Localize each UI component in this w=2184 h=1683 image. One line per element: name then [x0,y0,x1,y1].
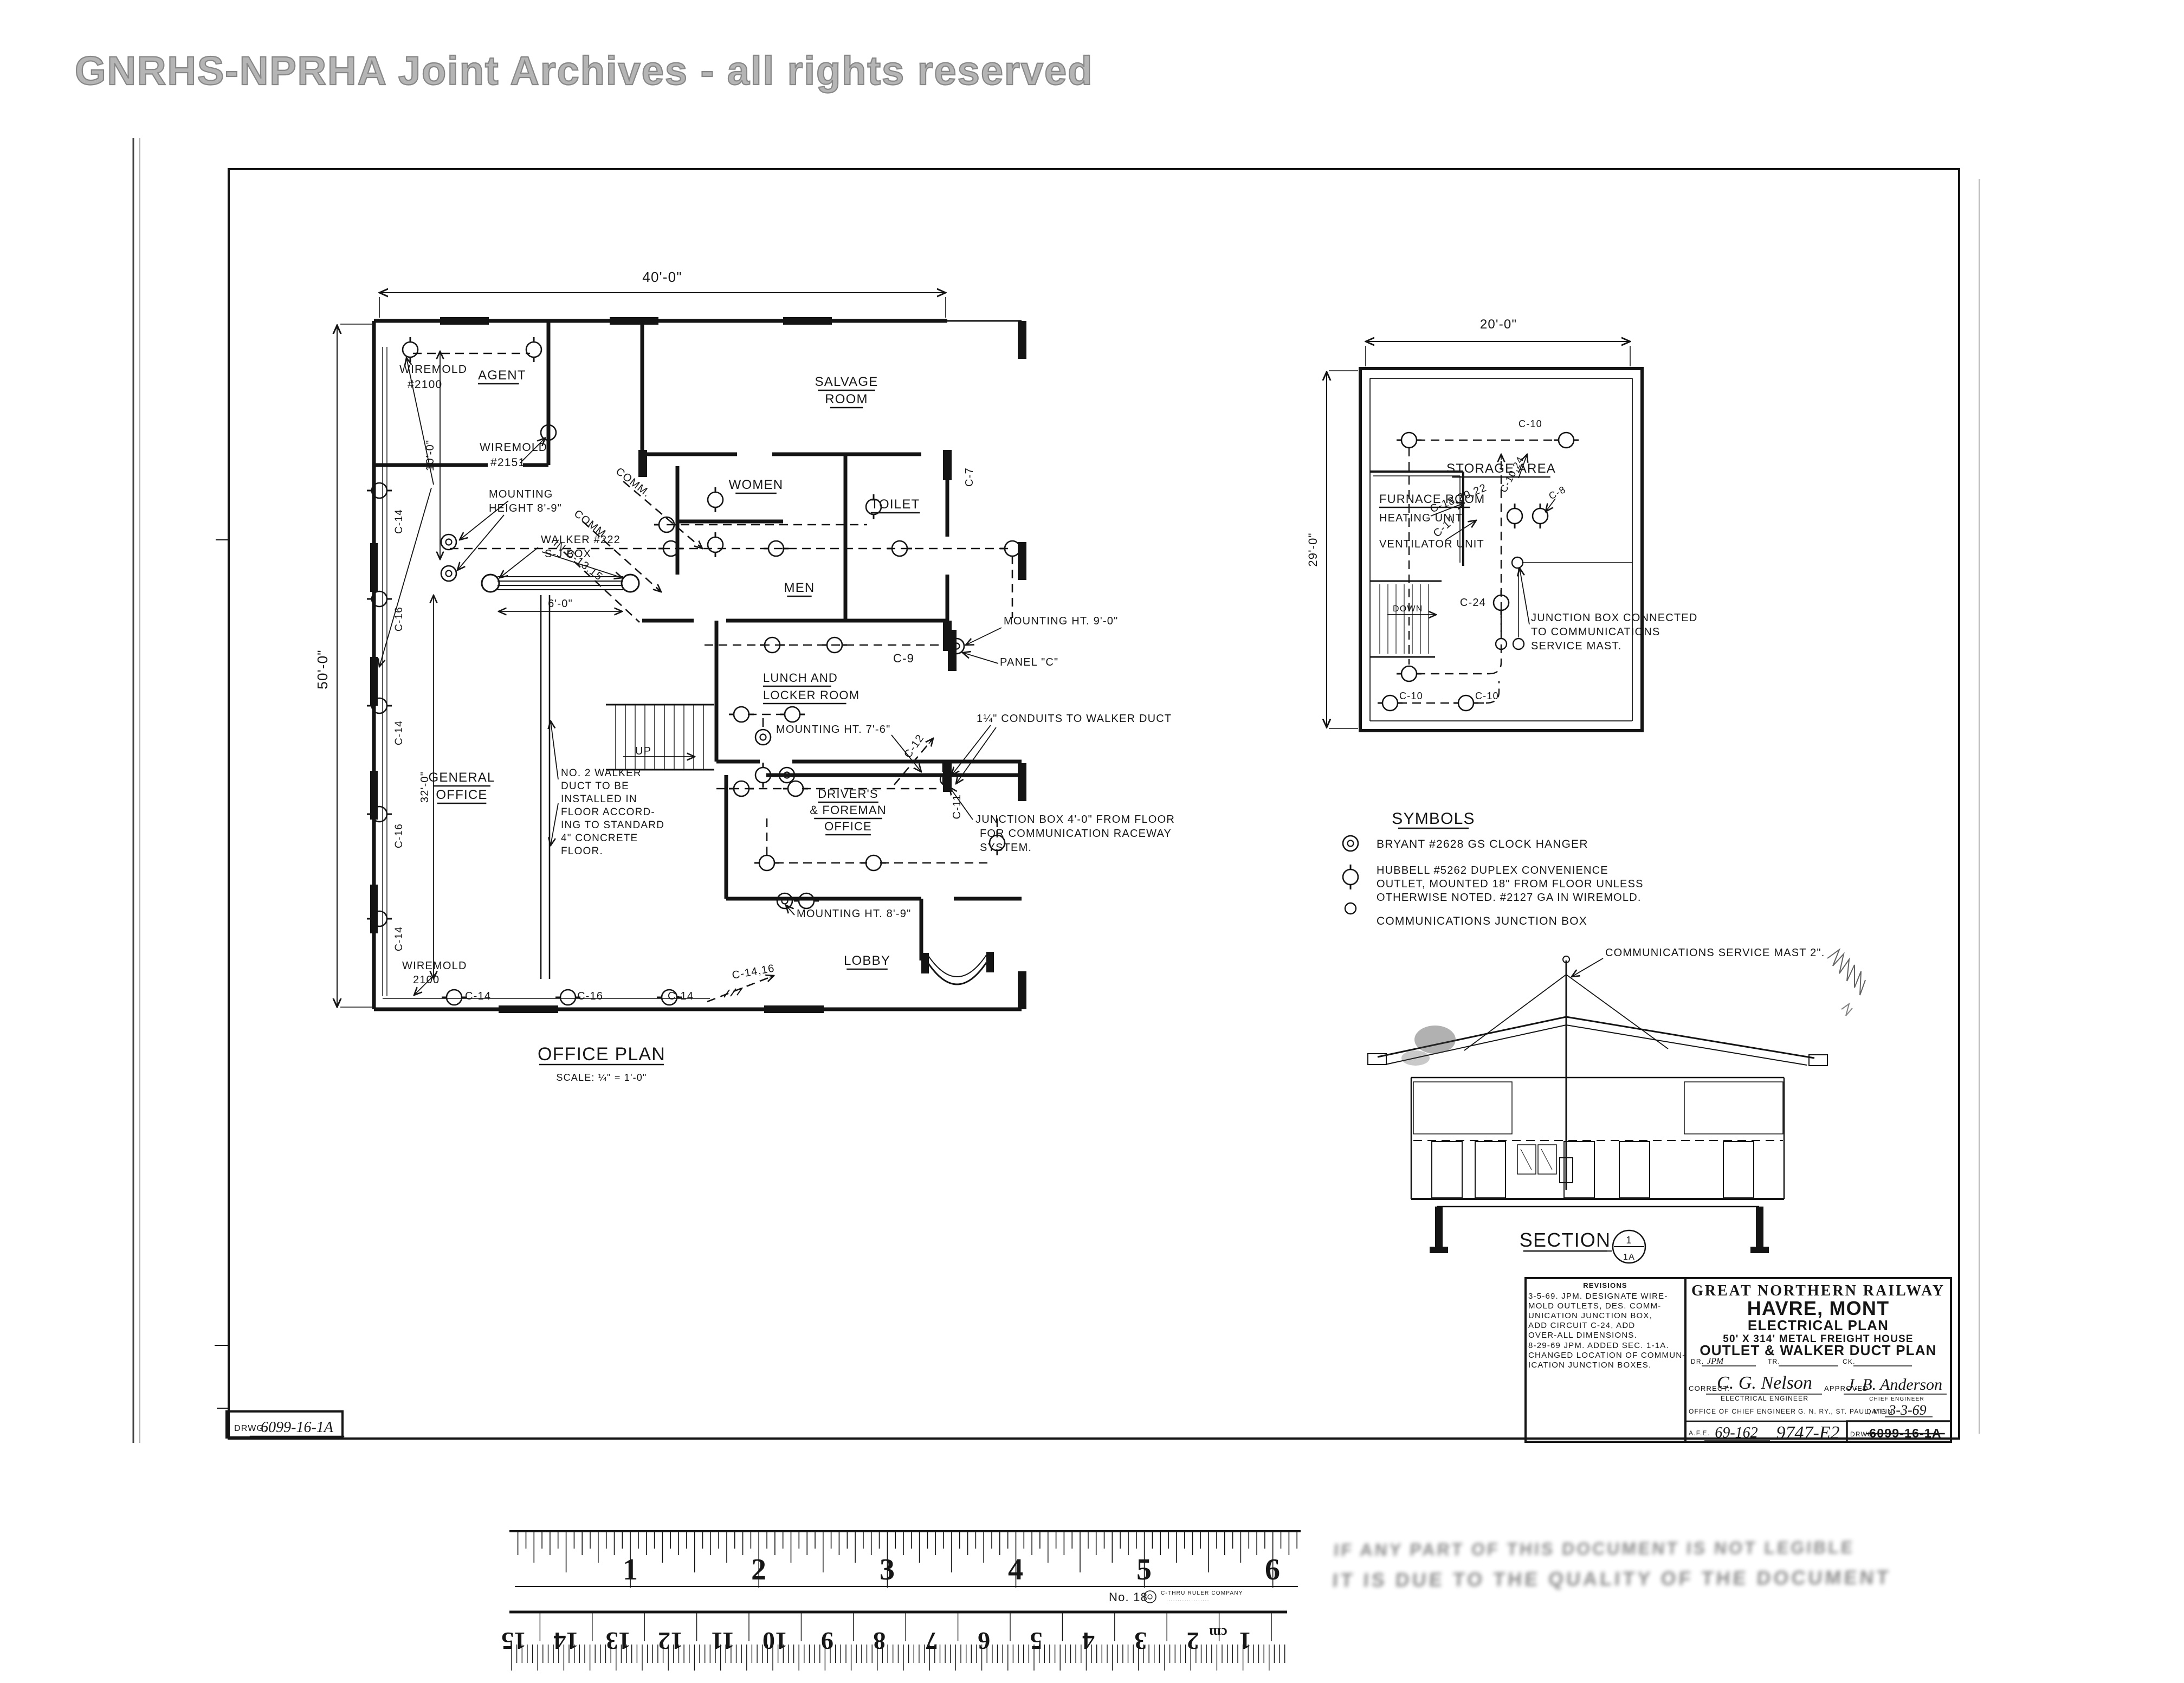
inch-mark-6: 6 [1265,1553,1280,1587]
office-plan-walls [374,321,1026,1009]
toilet-room-text: TOILET [871,497,920,512]
duplex-symbol-icon [1554,433,1579,448]
revision-line-4: ADD CIRCUIT C-24, ADD [1528,1321,1635,1330]
c-12-text: C-12 [902,732,927,760]
revision-line-5-text: OVER-ALL DIMENSIONS. [1528,1331,1637,1340]
mast-note-text: COMMUNICATIONS SERVICE MAST 2". [1605,947,1825,959]
wiremold-2100b-line1-text: WIREMOLD [402,960,467,972]
tb-dr-value: JPM [1707,1357,1724,1366]
up-label: UP [635,745,651,757]
duplex-symbol-icon [367,591,392,607]
cm-mark-5: 5 [1030,1627,1043,1655]
women-room: WOMEN [729,478,784,493]
symbol-duplex-desc-3-text: OTHERWISE NOTED. #2127 GA IN WIREMOLD. [1377,892,1642,904]
drawing-labels: 40'-0"50'-0"WIREMOLD#2100AGENTWIREMOLD#2… [234,269,1945,1604]
tb-correct-title-text: ELECTRICAL ENGINEER [1721,1395,1808,1402]
cm-mark-2: 2 [1187,1627,1199,1655]
cm-mark-14: 14 [553,1627,578,1655]
conduits-note: 1¼" CONDUITS TO WALKER DUCT [977,713,1172,725]
symbol-clock-desc-text: BRYANT #2628 GS CLOCK HANGER [1377,838,1588,850]
section-title-text: SECTION [1520,1229,1611,1251]
c-8-text: C-8 [1547,484,1567,502]
duplex-symbol-icon [708,532,723,557]
junction-4ft-line2: FOR COMMUNICATION RACEWAY [980,828,1172,840]
tb-approved-signature-text: J. B. Anderson [1847,1376,1942,1394]
office-plan-scale-text: SCALE: ¼" = 1'-0" [556,1072,647,1083]
tb-office-label-text: OFFICE OF CHIEF ENGINEER [1689,1408,1796,1415]
section-title: SECTION [1520,1229,1611,1251]
c-16-left2: C-16 [393,823,405,848]
section-detail-num: 1 [1626,1235,1632,1246]
ruler-maker-text: C-THRU RULER COMPANY [1161,1590,1243,1596]
tb-ck-label-text: CK. [1843,1358,1856,1365]
salvage-room-line2: ROOM [825,392,868,408]
drivers-office-line1-text: DRIVER'S [818,787,878,801]
drivers-office-line2: & FOREMAN [810,803,887,818]
duplex-symbol-icon [442,990,467,1005]
c-24: C-24 [1460,597,1486,609]
lobby-room-text: LOBBY [844,953,890,968]
storage-plan-dimensions [1327,341,1630,728]
cm-mark-15: 15 [501,1627,526,1655]
general-office-line1-text: GENERAL [428,770,495,785]
electrical-plan-drawing: 123456151413121110987654321cm 40'-0"50'-… [0,0,2184,1680]
dim-50: 50'-0" [314,649,331,689]
men-room: MEN [784,581,815,596]
junction-4ft-line3-text: SYSTEM. [980,842,1032,854]
tb-plan-type-text: ELECTRICAL PLAN [1748,1317,1889,1333]
c-14-left1: C-14 [393,509,405,534]
wiremold-2100-line1: WIREMOLD [399,363,467,376]
cm-mark-3: 3 [1134,1627,1147,1655]
c-14-left2-text: C-14 [393,720,405,745]
revisions-title-text: REVISIONS [1583,1281,1627,1289]
symbol-duplex-desc-2-text: OUTLET, MOUNTED 18" FROM FLOOR UNLESS [1377,878,1644,890]
symbol-duplex-desc-1-text: HUBBELL #5262 DUPLEX CONVENIENCE [1377,865,1608,876]
women-room-text: WOMEN [729,478,784,492]
revision-line-6-text: 8-29-69 JPM. ADDED SEC. 1-1A. [1528,1341,1669,1350]
mounting-ht-89b-text: MOUNTING HT. 8'-9" [797,908,911,920]
cm-mark-10: 10 [763,1627,787,1655]
duplex-symbol-icon [658,541,683,556]
mounting-ht-76-text: MOUNTING HT. 7'-6" [776,724,890,736]
inch-mark-3: 3 [880,1553,895,1587]
general-office-line1: GENERAL [428,770,495,786]
tb-afe-label: A.F.E. [1689,1429,1710,1437]
cm-mark-6: 6 [978,1627,990,1655]
tb-approved-title-text: CHIEF ENGINEER [1869,1396,1924,1402]
c-16-bottom-text: C-16 [577,990,603,1002]
wiremold-2100-line1-text: WIREMOLD [399,363,467,376]
symbol-jbox-desc: COMMUNICATIONS JUNCTION BOX [1377,915,1587,927]
tb-office-label: OFFICE OF CHIEF ENGINEER [1689,1408,1796,1415]
cm-mark-7: 7 [926,1627,938,1655]
tb-afe-value: 69-162 [1715,1424,1757,1441]
revision-line-1-text: 3-5-69. JPM. DESIGNATE WIRE- [1528,1292,1668,1301]
cm-mark-12: 12 [658,1627,683,1655]
junction-mast-line1: JUNCTION BOX CONNECTED [1531,612,1698,624]
inch-mark-1: 1 [623,1553,638,1587]
tb-ck-label: CK. [1843,1358,1856,1365]
symbol-duplex-desc-3: OTHERWISE NOTED. #2127 GA IN WIREMOLD. [1377,892,1642,904]
duplex-symbol-icon [403,337,418,362]
symbols-title-text: SYMBOLS [1392,810,1475,828]
c-16-left1: C-16 [393,607,405,631]
mounting-ht-90-text: MOUNTING HT. 9'-0" [1004,615,1118,627]
walker-duct-note-1: NO. 2 WALKER [561,768,642,779]
dim-10: 10'-0" [424,440,436,471]
mounting-ht-90: MOUNTING HT. 9'-0" [1004,615,1118,627]
tb-date-label: DATE [1866,1408,1886,1415]
cm-mark-1: 1 [1239,1627,1251,1655]
ruler-model-text: No. 18 [1109,1590,1148,1604]
junction-4ft-line1-text: JUNCTION BOX 4'-0" FROM FLOOR [975,814,1175,826]
duplex-symbol-icon [526,337,541,362]
c-24-text: C-24 [1460,597,1486,609]
duplex-symbol-icon [1533,504,1548,528]
lunch-room-line1: LUNCH AND [763,671,838,686]
cm-unit-label: cm [1209,1625,1227,1641]
drivers-office-line3-text: OFFICE [824,820,872,833]
c-8: C-8 [1547,484,1567,502]
agent-room-text: AGENT [478,368,526,383]
duplex-symbol-icon [887,541,912,556]
symbol-duplex-desc-1: HUBBELL #5262 DUPLEX CONVENIENCE [1377,865,1608,876]
duplex-symbol-icon [760,637,785,653]
tb-correct-signature: C. G. Nelson [1717,1373,1812,1393]
dim-20-text: 20'-0" [1480,317,1517,332]
wiremold-2100b-line1: WIREMOLD [402,960,467,972]
joct-symbol-icon [482,575,499,592]
stamp-line-2: IT IS DUE TO THE QUALITY OF THE DOCUMENT [1332,1565,2114,1592]
wiremold-2151-line1-text: WIREMOLD [480,441,547,454]
building-section [1368,956,1827,1263]
junction-mast-line1-text: JUNCTION BOX CONNECTED [1531,612,1698,624]
lunch-room-line1-text: LUNCH AND [763,671,838,685]
c-14-16-text: C-14,16 [731,962,776,981]
tb-dr-value-text: JPM [1707,1357,1724,1366]
c-10-right-text: C-10 [1519,418,1542,429]
walker-duct-note-5: ING TO STANDARD [561,820,664,831]
duplex-symbol-icon [729,781,754,796]
c-10-bottom1-text: C-10 [1399,691,1423,701]
dim-50-text: 50'-0" [314,649,331,689]
office-plan-title-text: OFFICE PLAN [538,1044,665,1065]
revision-line-3: UNICATION JUNCTION BOX, [1528,1311,1652,1320]
duplex-symbol-icon [1397,433,1421,448]
clock-symbol-icon [755,730,771,745]
up-label-text: UP [635,745,651,757]
c-11: C-11 [951,794,963,820]
wiremold-2151-line2-text: #2151 [490,456,525,469]
dim-40: 40'-0" [642,269,682,285]
revision-line-2-text: MOLD OUTLETS, DES. COMM- [1528,1301,1661,1311]
tb-dr-label-text: DR. [1691,1358,1704,1365]
walker-duct-note-4: FLOOR ACCORD- [561,807,655,818]
section-sheet-num: 1A [1623,1253,1635,1262]
panel-c: PANEL "C" [1000,656,1058,668]
symbol-jbox-desc-text: COMMUNICATIONS JUNCTION BOX [1377,915,1587,927]
tb-plan-number: 9747-E2 [1776,1423,1839,1443]
mast-note: COMMUNICATIONS SERVICE MAST 2". [1605,947,1825,959]
junction-mast-line3: SERVICE MAST. [1531,640,1622,652]
revision-line-8-text: ICATION JUNCTION BOXES. [1528,1360,1651,1370]
joct-symbol-icon [622,575,639,592]
c-9: C-9 [893,652,914,665]
tb-correct-title: ELECTRICAL ENGINEER [1721,1395,1808,1402]
section-detail-num-text: 1 [1626,1235,1632,1246]
c-11-text: C-11 [951,794,963,820]
pen-scribble [1827,950,1865,1016]
wiremold-2151-line1: WIREMOLD [480,441,547,454]
jbox-symbol-icon [1512,557,1523,568]
tb-date-value: 3-3-69 [1888,1402,1926,1418]
junction-4ft-line1: JUNCTION BOX 4'-0" FROM FLOOR [975,814,1175,826]
c-14-bottom1: C-14 [465,990,491,1002]
tb-plan-name: OUTLET & WALKER DUCT PLAN [1700,1342,1936,1358]
dim-20: 20'-0" [1480,317,1517,332]
duplex-symbol-icon [1507,504,1522,528]
junction-mast-line2: TO COMMUNICATIONS [1531,626,1660,638]
tb-correct-signature-text: C. G. Nelson [1717,1373,1812,1393]
cm-mark-8: 8 [873,1627,886,1655]
duplex-symbol-icon [780,707,805,722]
tb-location: HAVRE, MONT [1747,1297,1890,1319]
walker-duct-note-2: DUCT TO BE [561,781,629,792]
walker-duct-note-2-text: DUCT TO BE [561,781,629,792]
jbox-symbol-icon [1513,639,1524,649]
mounting-height-89-line2-text: HEIGHT 8'-9" [489,502,562,514]
dim-6-text: 6'-0" [548,598,573,610]
drivers-office-line1: DRIVER'S [818,787,878,802]
walker-duct-note-5-text: ING TO STANDARD [561,820,664,831]
cm-mark-9: 9 [821,1627,833,1655]
c-14-left2: C-14 [393,720,405,745]
ruler-model: No. 18 [1109,1590,1148,1604]
junction-mast-line3-text: SERVICE MAST. [1531,640,1622,652]
duplex-symbol-icon [1343,865,1358,889]
agent-room: AGENT [478,368,526,384]
duplex-symbol-icon [367,483,392,498]
c-14-bottom2-text: C-14 [668,990,694,1002]
c-7: C-7 [964,467,975,487]
duplex-symbol-icon [708,487,723,512]
drivers-office-line3: OFFICE [824,820,872,835]
mounting-height-89-line1: MOUNTING [489,488,553,500]
panel-c-text: PANEL "C" [1000,656,1058,668]
wiremold-2100-line2: #2100 [408,378,442,391]
archive-watermark: GNRHS-NPRHA Joint Archives - all rights … [75,48,1093,94]
c-10-right: C-10 [1519,418,1542,429]
lobby-room: LOBBY [844,953,890,969]
c-14-16: C-14,16 [731,962,776,981]
drivers-office-line2-text: & FOREMAN [810,803,887,817]
storage-area-text: STORAGE AREA [1446,461,1556,476]
walker-duct-note-7-text: FLOOR. [561,846,603,857]
c-10-bottom2-text: C-10 [1475,691,1499,701]
walker-duct-note-7: FLOOR. [561,846,603,857]
junction-4ft-line3: SYSTEM. [980,842,1032,854]
section-sheet-num-text: 1A [1623,1253,1635,1262]
wiremold-2100b-line2-text: 2100 [413,974,440,986]
walker-duct-note-6: 4" CONCRETE [561,833,638,844]
duplex-symbol-icon [794,893,819,908]
dim-29: 29'-0" [1306,532,1320,566]
cm-mark-4: 4 [1082,1627,1095,1655]
general-office-line2-text: OFFICE [436,788,487,802]
storage-area: STORAGE AREA [1446,461,1556,477]
dim-32-text: 32'-0" [419,771,431,803]
tb-afe-label-text: A.F.E. [1689,1429,1710,1437]
wiremold-2100b-line2: 2100 [413,974,440,986]
panel-symbol-icon [948,630,957,671]
drwg-corner-number-text: 6099-16-1A [261,1419,334,1436]
revisions-title: REVISIONS [1583,1281,1627,1289]
tb-plan-number-text: 9747-E2 [1776,1423,1839,1443]
dim-40-text: 40'-0" [642,269,682,285]
mounting-ht-76: MOUNTING HT. 7'-6" [776,724,890,736]
tb-drwg-number: 6099-16-1A [1866,1426,1944,1440]
c-16-left2-text: C-16 [393,823,405,848]
clock-symbol-icon [441,566,456,581]
clock-symbol-icon [1343,836,1358,851]
ventilator-unit-text: VENTILATOR UNIT [1379,538,1484,550]
c-10-bottom1: C-10 [1399,691,1423,701]
lunch-room-line2: LOCKER ROOM [763,688,860,704]
storage-plan-circuits [1398,440,1559,703]
stamp-line-1: IF ANY PART OF THIS DOCUMENT IS NOT LEGI… [1334,1536,2115,1561]
lunch-room-line2-text: LOCKER ROOM [763,688,860,702]
office-plan-scale: SCALE: ¼" = 1'-0" [556,1072,647,1083]
tb-date-label-text: DATE [1866,1408,1886,1415]
tb-dr-label: DR. [1691,1358,1704,1365]
inch-mark-4: 4 [1008,1553,1023,1587]
inch-mark-5: 5 [1136,1553,1152,1587]
walker-duct-note-3-text: INSTALLED IN [561,794,637,805]
c-14-left3: C-14 [393,926,405,951]
tb-approved-signature: J. B. Anderson [1847,1376,1942,1394]
jbox-symbol-icon [1345,903,1356,914]
c-14-bottom1-text: C-14 [465,990,491,1002]
tb-approved-title: CHIEF ENGINEER [1869,1396,1924,1402]
duplex-symbol-icon [861,855,886,870]
revision-line-1: 3-5-69. JPM. DESIGNATE WIRE- [1528,1292,1668,1301]
tb-plan-type: ELECTRICAL PLAN [1748,1317,1889,1333]
toilet-room: TOILET [871,497,920,513]
mounting-height-89-line1-text: MOUNTING [489,488,553,500]
cm-mark-11: 11 [711,1627,734,1655]
ruler-maker-fine: ··················· [1166,1598,1210,1603]
faded-legibility-stamp: IF ANY PART OF THIS DOCUMENT IS NOT LEGI… [1332,1536,2115,1592]
duplex-symbol-icon [1397,666,1421,681]
dim-6: 6'-0" [548,598,573,610]
tb-location-text: HAVRE, MONT [1747,1297,1890,1319]
scan-smudge [1414,1026,1456,1054]
walker-duct-note-1-text: NO. 2 WALKER [561,768,642,779]
c-16-left1-text: C-16 [393,607,405,631]
dim-32: 32'-0" [419,771,431,803]
tb-date-value-text: 3-3-69 [1888,1402,1926,1418]
walker-duct-note-6-text: 4" CONCRETE [561,833,638,844]
revision-line-5: OVER-ALL DIMENSIONS. [1528,1331,1637,1340]
tb-tr-label-text: TR. [1768,1358,1780,1365]
conduits-note-text: 1¼" CONDUITS TO WALKER DUCT [977,713,1172,725]
c-12: C-12 [902,732,927,760]
revision-line-8: ICATION JUNCTION BOXES. [1528,1360,1651,1370]
c-14-left1-text: C-14 [393,509,405,534]
salvage-room-line1-text: SALVAGE [815,375,878,389]
revision-line-7-text: CHANGED LOCATION OF COMMUN- [1528,1351,1685,1360]
c-14-left3-text: C-14 [393,926,405,951]
walker-duct-note-4-text: FLOOR ACCORD- [561,807,655,818]
dim-10-text: 10'-0" [424,440,436,471]
symbol-duplex-desc-2: OUTLET, MOUNTED 18" FROM FLOOR UNLESS [1377,878,1644,890]
down-label: DOWN [1393,604,1423,614]
ruler-maker: C-THRU RULER COMPANY [1161,1590,1243,1596]
office-plan-title: OFFICE PLAN [538,1044,665,1065]
ventilator-unit: VENTILATOR UNIT [1379,538,1484,550]
inch-mark-2: 2 [751,1553,766,1587]
symbols-title: SYMBOLS [1392,810,1475,828]
dim-29-text: 29'-0" [1306,532,1320,566]
revision-line-3-text: UNICATION JUNCTION BOX, [1528,1311,1652,1320]
junction-mast-line2-text: TO COMMUNICATIONS [1531,626,1660,638]
c-10-bottom2: C-10 [1475,691,1499,701]
walker-duct-note-3: INSTALLED IN [561,794,637,805]
wiremold-2151-line2: #2151 [490,456,525,469]
c-9-text: C-9 [893,652,914,665]
c-16-bottom: C-16 [577,990,603,1002]
revision-line-7: CHANGED LOCATION OF COMMUN- [1528,1351,1685,1360]
mounting-ht-89b: MOUNTING HT. 8'-9" [797,908,911,920]
c-7-text: C-7 [964,467,975,487]
wiremold-2100-line2-text: #2100 [408,378,442,391]
tb-tr-label: TR. [1768,1358,1780,1365]
revision-line-4-text: ADD CIRCUIT C-24, ADD [1528,1321,1635,1330]
cm-mark-13: 13 [606,1627,631,1655]
general-office-line2: OFFICE [436,788,487,803]
junction-4ft-line2-text: FOR COMMUNICATION RACEWAY [980,828,1172,840]
c-14-bottom2: C-14 [668,990,694,1002]
clock-symbol-icon [777,893,792,908]
symbol-clock-desc: BRYANT #2628 GS CLOCK HANGER [1377,838,1588,850]
salvage-room-line2-text: ROOM [825,392,868,407]
drwg-corner-number: 6099-16-1A [250,1419,344,1436]
revision-line-6: 8-29-69 JPM. ADDED SEC. 1-1A. [1528,1341,1669,1350]
down-label-text: DOWN [1393,604,1423,614]
duplex-symbol-icon [754,855,779,870]
mounting-height-89-line2: HEIGHT 8'-9" [489,502,562,514]
men-room-text: MEN [784,581,815,595]
tb-afe-value-text: 69-162 [1715,1424,1757,1441]
scanned-drawing-page: GNRHS-NPRHA Joint Archives - all rights … [0,0,2184,1680]
revision-line-2: MOLD OUTLETS, DES. COMM- [1528,1301,1661,1311]
duplex-symbol-icon [729,707,754,722]
tb-plan-name-text: OUTLET & WALKER DUCT PLAN [1700,1342,1936,1358]
sheet-border [133,138,1979,1443]
ruler-maker-fine-text: ··················· [1166,1598,1210,1603]
salvage-room-line1: SALVAGE [815,375,878,390]
clock-symbol-icon [441,534,456,550]
